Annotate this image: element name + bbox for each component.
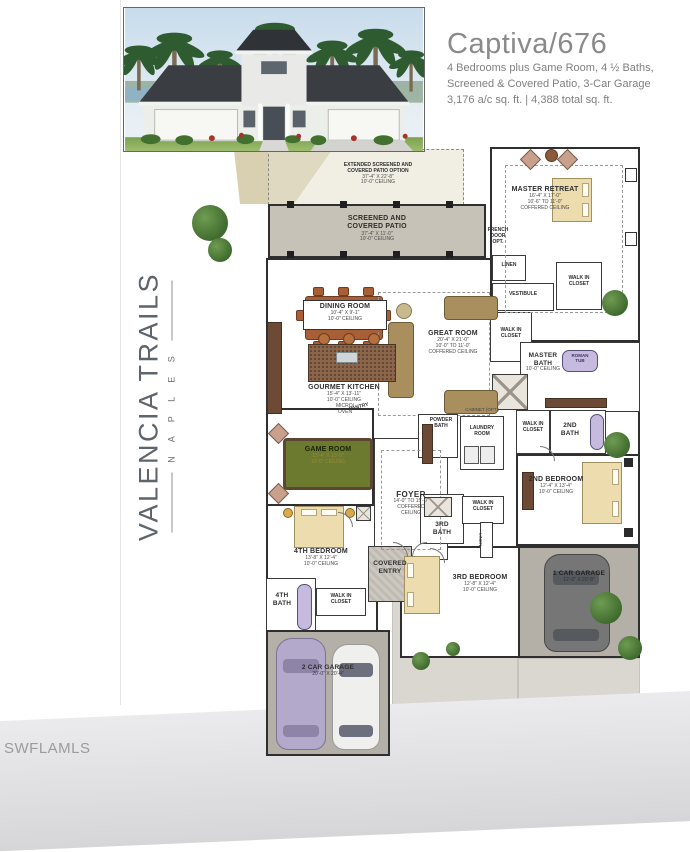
room-name: COVERED [368,560,412,568]
kitchen-label: GOURMET KITCHEN 15'-4" X 13'-11" 10'-0" … [292,384,396,404]
tree [590,592,622,624]
room-ceiling: COFFERED CEILING [418,350,488,356]
room-ceiling: 10'-0" CEILING [446,588,514,594]
car-rear-window [339,725,373,737]
patio-column [393,251,400,258]
vestibule-label: VESTIBULE [492,292,554,298]
wic-4th-label: WALK IN CLOSET [316,594,366,606]
pillow [612,501,619,517]
patio-column [287,251,294,258]
room-ceiling: 10'-0" CEILING [322,237,432,243]
master-bath-label: MASTER BATH 10'-0" CEILING [524,352,562,373]
master-retreat-label: MASTER RETREAT 16'-4" X 17'-0" 10'-6" TO… [495,186,595,212]
fourth-bedroom-label: 4TH BEDROOM 13'-8" X 12'-4" 10'-0" CEILI… [286,548,356,568]
dining-chair [338,287,349,296]
room-name: MASTER [524,352,562,360]
watermark: SWFLAMLS [4,740,91,757]
room-name: CLOSET [316,600,366,606]
room-name: 4TH [268,592,296,600]
dining-chair [313,287,324,296]
room-ceiling: 10'-0" CEILING [303,317,387,323]
floorplan-sheet: { "header": { "title": "Captiva/676", "l… [0,0,690,768]
extended-patio-label: EXTENDED SCREENED AND COVERED PATIO OPTI… [318,163,438,186]
patio-label: SCREENED AND COVERED PATIO 37'-4" X 11'-… [322,215,432,243]
second-bath-tub [590,414,604,450]
room-ceiling: 10'-0" CEILING [318,180,438,186]
great-room-sofa [444,296,498,320]
wic1-label: WALK IN CLOSET [490,328,532,340]
white-car [332,644,380,750]
room-name: BATH [424,529,460,537]
tree [618,636,642,660]
plan-subtitle-line3: 3,176 a/c sq. ft. | 4,388 total sq. ft. [447,94,613,106]
dining-chair [363,287,374,296]
kitchen-wall-cabinets [267,322,282,414]
wic-3rd-label: WALK IN CLOSET [462,501,504,513]
room-name: BATH [552,430,588,438]
laundry-label: LAUNDRY ROOM [460,426,504,438]
shrub [446,642,460,656]
pillow [301,509,317,516]
pillow [612,469,619,485]
tree [604,432,630,458]
art-niche [356,506,371,521]
side-table [545,149,558,162]
patio-column [340,201,347,208]
shrub [412,652,430,670]
one-car-garage-label: 1 CAR GARAGE 12'-0" X 20'-8" [548,570,610,584]
pillow [321,509,337,516]
room-name: CLOSET [556,282,602,288]
car-rear-window [553,629,599,641]
room-name: BATH [268,600,296,608]
patio-column [287,201,294,208]
hall-cabinet [422,424,433,464]
option-label: OPT. [484,240,512,246]
room-name: LINEN [492,263,526,269]
fourth-bed [294,506,344,548]
powder-bath-label: POWDER BATH [424,418,458,430]
room-name: ENTRY [368,568,412,576]
game-room-label: GAME ROOM 13'-4" X 13'-0" 10'-0" CEILING [285,446,371,466]
wic2-label: WALK IN CLOSET [556,276,602,288]
pillow [407,592,414,607]
second-bedroom-label: 2ND BEDROOM 12'-4" X 13'-4" 10'-0" CEILI… [524,476,588,496]
tree [602,290,628,316]
kitchen-island [308,344,396,382]
nightstand [624,458,633,467]
room-name: SCREENED AND [322,215,432,223]
round-chair [396,303,412,319]
tree [192,205,228,241]
room-name: 2ND [552,422,588,430]
patio-column [446,251,453,258]
sheet-left-edge [120,0,121,705]
french-door-option-label: FRENCH DOOR OPT. [484,228,512,245]
room-name: ROOM [460,432,504,438]
lamp [283,508,293,518]
car-rear-window [283,725,319,737]
dryer [480,446,495,464]
hall-linen-closet: LINEN [480,522,493,558]
plan-title: Captiva/676 [447,28,607,61]
washer [464,446,479,464]
fourth-bath-tub [297,584,312,630]
room-dim: 20'-0" X 20'-4" [296,672,360,678]
master-vanity [545,398,607,408]
room-ceiling: 10'-0" CEILING [524,490,588,496]
house-rendering [123,7,425,152]
wall-niche [625,168,637,182]
wic-2nd-label: WALK IN CLOSET [516,422,550,434]
option-label: CABINET (OPT.) [458,407,506,412]
two-car-garage-label: 2 CAR GARAGE 20'-0" X 20'-4" [296,664,360,678]
great-room-label: GREAT ROOM 20'-4" X 21'-0" 10'-0" TO 11'… [418,330,488,356]
room-name: BATH [424,424,458,430]
patio-column [340,251,347,258]
brand-name: VALENCIA TRAILS [134,242,165,572]
room-ceiling: COFFERED CEILING [495,206,595,212]
second-bed [582,462,622,524]
fixture-label: TUB [562,359,598,364]
house-rendering-art [124,8,424,151]
fourth-bath-label: 4TH BATH [268,592,296,607]
third-bedroom-label: 3RD BEDROOM 12'-8" X 12'-4" 10'-0" CEILI… [446,574,514,594]
room-ceiling: 10'-0" CEILING [285,460,371,466]
covered-entry-label: COVERED ENTRY [368,560,412,575]
patio-column [446,201,453,208]
room-name: CLOSET [462,507,504,513]
foyer-label: FOYER 14'-0" TO 15'-0" COFFERED CEILING [380,490,442,517]
brand-location: N A P L E S [167,350,177,463]
room-name: CLOSET [490,334,532,340]
plan-subtitle-line1: 4 Bedrooms plus Game Room, 4 ½ Baths, [447,62,654,74]
brand-rule-left [171,473,172,533]
island-sink [336,352,358,363]
room-name: VESTIBULE [492,292,554,298]
nightstand [624,528,633,537]
wall-niche [625,232,637,246]
roman-tub-label: ROMAN TUB [562,354,598,364]
room-name: 3RD [424,521,460,529]
linen-label: LINEN [492,263,526,269]
room-ceiling: CEILING [380,511,442,517]
tree [208,238,232,262]
second-bath-label: 2ND BATH [552,422,588,437]
brand-rule-right [171,280,172,340]
room-ceiling: 10'-0" CEILING [524,367,562,373]
third-bath-label: 3RD BATH [424,521,460,536]
room-name: LINEN [478,533,483,544]
dining-label: DINING ROOM 10'-4" X 9'-1" 10'-0" CEILIN… [303,303,387,323]
plan-subtitle-line2: Screened & Covered Patio, 3-Car Garage [447,78,651,90]
cabinet-option-label: CABINET (OPT.) [458,407,506,412]
room-name: CLOSET [516,428,550,434]
room-ceiling: 10'-0" CEILING [286,562,356,568]
patio-column [393,201,400,208]
lavender-car [276,638,326,750]
room-dim: 12'-0" X 20'-8" [548,578,610,584]
